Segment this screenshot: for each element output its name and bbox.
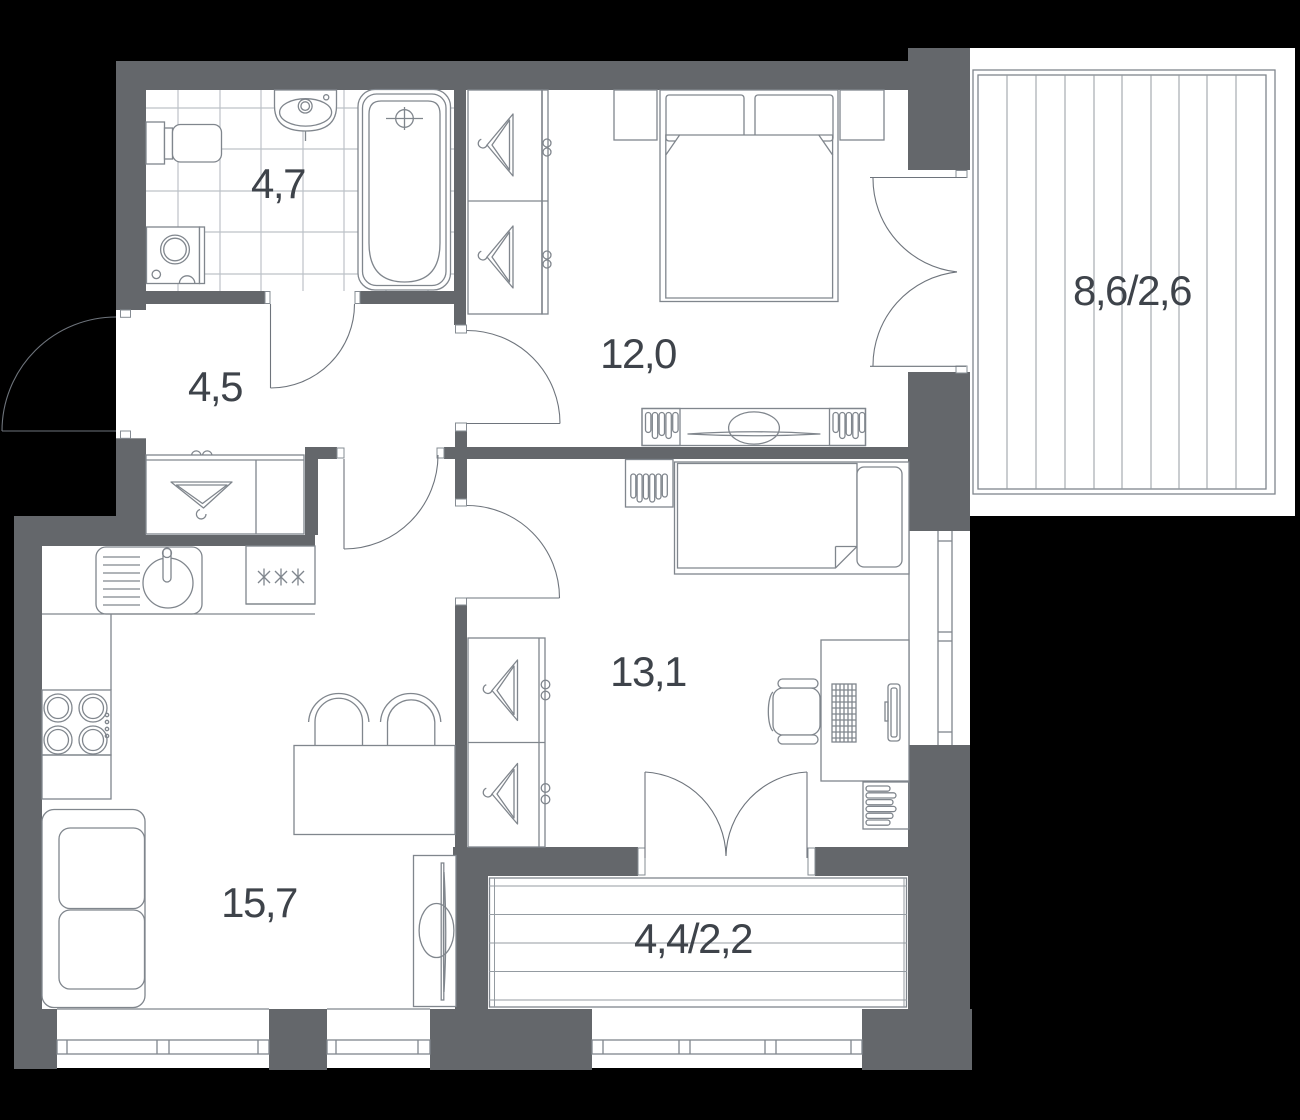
svg-text:12,0: 12,0 [600,330,676,377]
svg-text:4,4/2,2: 4,4/2,2 [634,915,752,962]
svg-text:13,1: 13,1 [610,648,686,695]
svg-text:4,7: 4,7 [251,160,305,207]
svg-text:4,5: 4,5 [188,363,242,410]
svg-text:15,7: 15,7 [221,879,297,926]
svg-text:8,6/2,6: 8,6/2,6 [1073,267,1191,314]
